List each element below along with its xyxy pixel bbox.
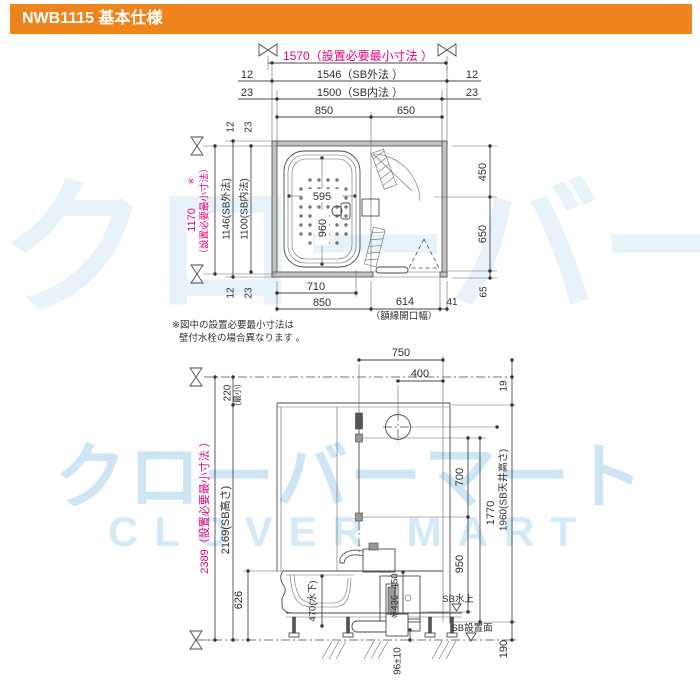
dim-tub-960: 960 (317, 219, 329, 237)
label-sb-install-surface: SB設置面 (451, 622, 492, 634)
dim-elev-436: ※436~450 (389, 573, 400, 618)
dim-elev-96: 96±10 (393, 647, 404, 675)
dim-elev-190: 190 (498, 640, 510, 658)
dim-elev-950: 950 (454, 555, 466, 573)
plan-view: 1570（設置必要最小寸法 ） 12 1546（SB外法 ） 12 23 150… (186, 44, 497, 322)
benchmark-icon (191, 265, 203, 283)
dim-elev-400: 400 (411, 368, 429, 380)
dim-plan-850-bottom: 850 (313, 297, 331, 309)
page: { "header": { "title": "NWB1115 基本仕様" },… (0, 0, 700, 700)
door-plan (362, 146, 439, 272)
dim-plan-1100: 1100(SB内法) (238, 178, 251, 240)
dim-elev-626: 626 (233, 591, 245, 609)
benchmark-icon (191, 137, 203, 155)
dim-plan-1146: 1146(SB外法) (220, 178, 233, 240)
benchmark-icon (438, 44, 456, 56)
dim-plan-1170-note: ※ (187, 178, 196, 185)
dim-elev-220-label: (最小) (233, 384, 242, 406)
dim-plan-614: 614 (396, 296, 414, 308)
dim-tub-595: 595 (313, 191, 331, 203)
bathtub-section (281, 543, 450, 622)
door-swing-marker (409, 239, 439, 268)
dim-plan-1170-label: （設置必要最小寸法） (198, 163, 210, 258)
dim-plan-650-right: 650 (477, 225, 489, 243)
benchmark-icon (190, 368, 202, 386)
dim-plan-710: 710 (307, 281, 325, 293)
dim-plan-1170: 1170 (186, 208, 198, 232)
dim-plan-1500: 1500（SB内法 ） (317, 85, 403, 99)
dim-plan-650-top: 650 (397, 105, 415, 117)
page-title: NWB1115 基本仕様 (10, 4, 692, 34)
counter-plan (362, 199, 379, 216)
dim-elev-700: 700 (454, 468, 466, 486)
faucet-icon (340, 543, 395, 572)
dim-elev-470: 470(水下) (306, 580, 318, 621)
dim-plan-23-bottomleft: 23 (244, 287, 255, 299)
label-sb-water-top: SB水上 (442, 593, 474, 605)
dim-elev-2169: 2169(SB高さ) (218, 486, 232, 554)
dim-elev-2389: 2389（設置必要最小寸法 ） (197, 436, 211, 574)
benchmark-icon (259, 44, 277, 56)
dim-plan-12-right: 12 (466, 69, 478, 81)
dim-plan-450: 450 (477, 163, 489, 181)
dim-plan-23-left: 23 (241, 87, 253, 99)
bathtub-plan (284, 151, 360, 267)
dim-elev-750: 750 (392, 347, 410, 359)
footnote-line2: 壁付水栓の場合異なります 。 (172, 332, 305, 345)
dim-plan-23-topleft: 23 (244, 121, 255, 133)
dim-plan-614-label: （額縁開口幅） (371, 310, 438, 322)
door-panel-closed (364, 227, 385, 267)
dim-plan-41: 41 (446, 297, 458, 308)
dim-plan-1570: 1570（設置必要最小寸法 ） (283, 48, 433, 63)
dim-plan-23-right: 23 (466, 87, 478, 99)
dim-plan-12-topleft: 12 (226, 121, 237, 133)
shower-bar-icon (356, 413, 363, 556)
elevation-view: 750 400 19 220 (最小) 2389（設置必要最小寸法 ） 2169… (190, 347, 516, 675)
footnote: ※図中の設置必要最小寸法は 壁付水栓の場合異なります 。 (172, 319, 305, 345)
dim-elev-1960: 1960(SB天井高さ) (497, 449, 510, 531)
dim-plan-12-left: 12 (241, 69, 253, 81)
dim-elev-19: 19 (499, 380, 510, 392)
door-panel-open (371, 149, 396, 189)
level-marker-icon (452, 604, 461, 611)
floor-hatching (322, 641, 456, 659)
dim-plan-1546: 1546（SB外法 ） (317, 67, 403, 81)
dim-plan-65: 65 (479, 286, 490, 298)
dim-plan-850-top: 850 (315, 105, 333, 117)
footnote-line1: ※図中の設置必要最小寸法は (172, 319, 305, 332)
dim-elev-1770: 1770 (485, 501, 497, 525)
elevation-walls (277, 403, 450, 623)
technical-drawing: 1570（設置必要最小寸法 ） 12 1546（SB外法 ） 12 23 150… (0, 0, 700, 700)
dim-plan-12-bottomleft: 12 (226, 287, 237, 299)
